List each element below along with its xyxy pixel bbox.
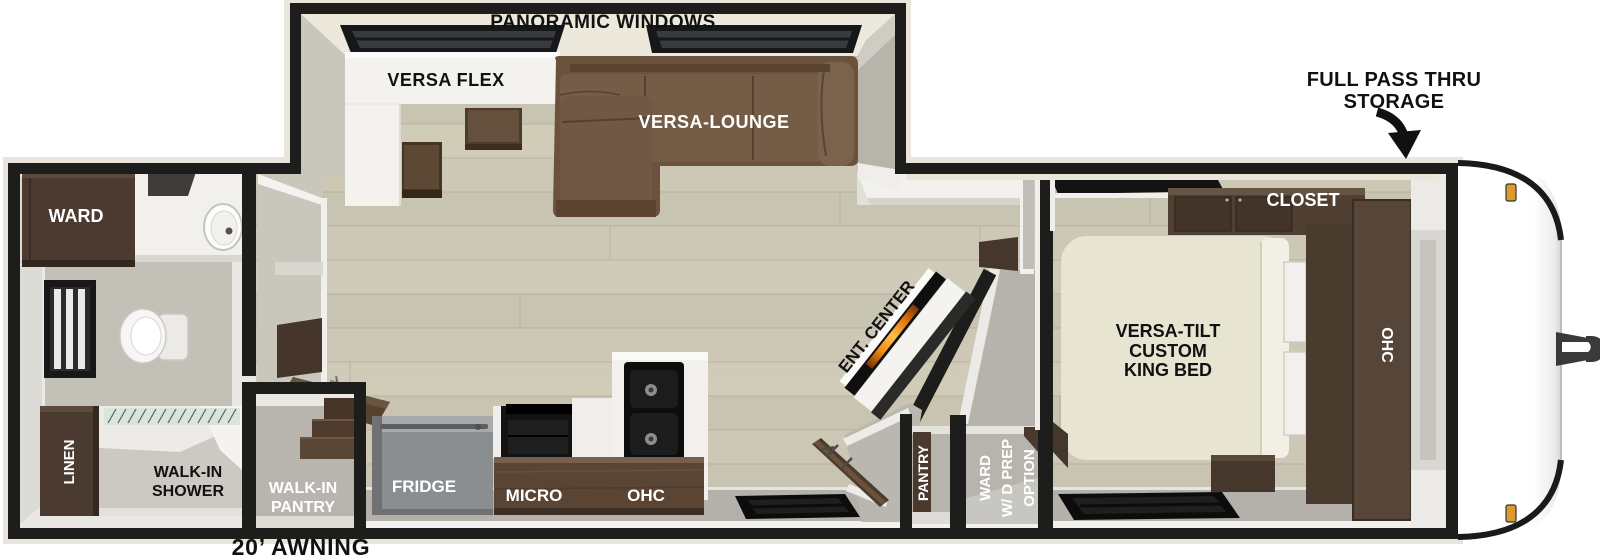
- svg-text:OHC: OHC: [1378, 327, 1395, 363]
- svg-text:WARD: WARD: [49, 206, 104, 226]
- svg-text:VERSA FLEX: VERSA FLEX: [387, 70, 504, 90]
- svg-text:FULL PASS THRU: FULL PASS THRU: [1307, 69, 1482, 91]
- svg-text:PANORAMIC WINDOWS: PANORAMIC WINDOWS: [490, 12, 716, 33]
- svg-text:LINEN: LINEN: [61, 440, 78, 485]
- svg-text:MICRO: MICRO: [506, 486, 563, 505]
- svg-text:PANTRY: PANTRY: [271, 499, 335, 516]
- svg-text:STORAGE: STORAGE: [1344, 91, 1445, 113]
- svg-text:FRIDGE: FRIDGE: [392, 477, 456, 496]
- svg-text:WARD: WARD: [977, 455, 994, 501]
- svg-text:VERSA-TILT: VERSA-TILT: [1116, 321, 1221, 341]
- svg-text:CUSTOM: CUSTOM: [1129, 341, 1207, 361]
- svg-text:CLOSET: CLOSET: [1266, 190, 1339, 210]
- svg-text:W/ D PREP: W/ D PREP: [999, 439, 1016, 517]
- svg-text:20’ AWNING: 20’ AWNING: [232, 534, 371, 557]
- svg-text:WALK-IN: WALK-IN: [154, 464, 222, 481]
- svg-text:PANTRY: PANTRY: [915, 444, 931, 501]
- svg-text:SHOWER: SHOWER: [152, 483, 224, 500]
- svg-text:VERSA-LOUNGE: VERSA-LOUNGE: [638, 112, 789, 132]
- svg-text:WALK-IN: WALK-IN: [269, 480, 337, 497]
- svg-text:OPTION: OPTION: [1021, 449, 1038, 507]
- svg-text:OHC: OHC: [627, 486, 665, 505]
- svg-text:KING BED: KING BED: [1124, 360, 1212, 380]
